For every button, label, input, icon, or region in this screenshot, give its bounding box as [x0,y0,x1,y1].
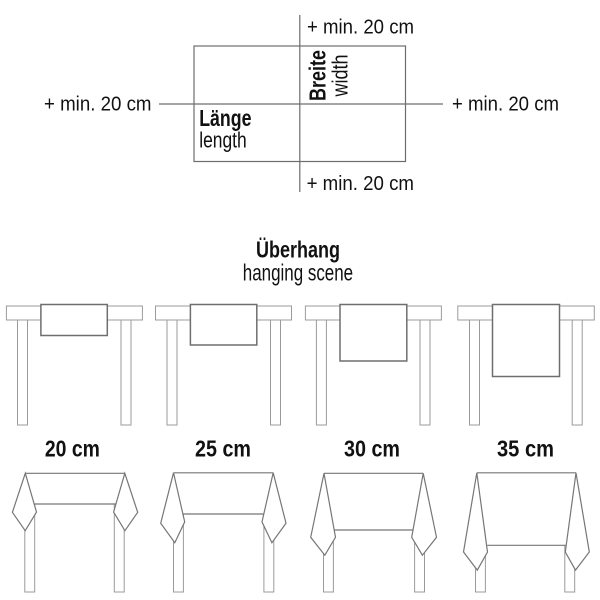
svg-text:+ min. 20 cm: + min. 20 cm [44,94,152,116]
svg-text:width: width [328,55,353,98]
svg-text:35 cm: 35 cm [497,435,554,461]
svg-text:30 cm: 30 cm [344,435,400,461]
svg-text:+ min. 20 cm: + min. 20 cm [307,173,414,195]
svg-text:Überhang: Überhang [256,237,340,263]
svg-text:length: length [199,127,247,152]
svg-text:+ min. 20 cm: + min. 20 cm [307,17,414,39]
svg-text:+ min. 20 cm: + min. 20 cm [452,94,559,116]
svg-text:25 cm: 25 cm [195,435,251,461]
svg-text:20 cm: 20 cm [45,435,100,461]
svg-text:hanging scene: hanging scene [243,260,353,286]
